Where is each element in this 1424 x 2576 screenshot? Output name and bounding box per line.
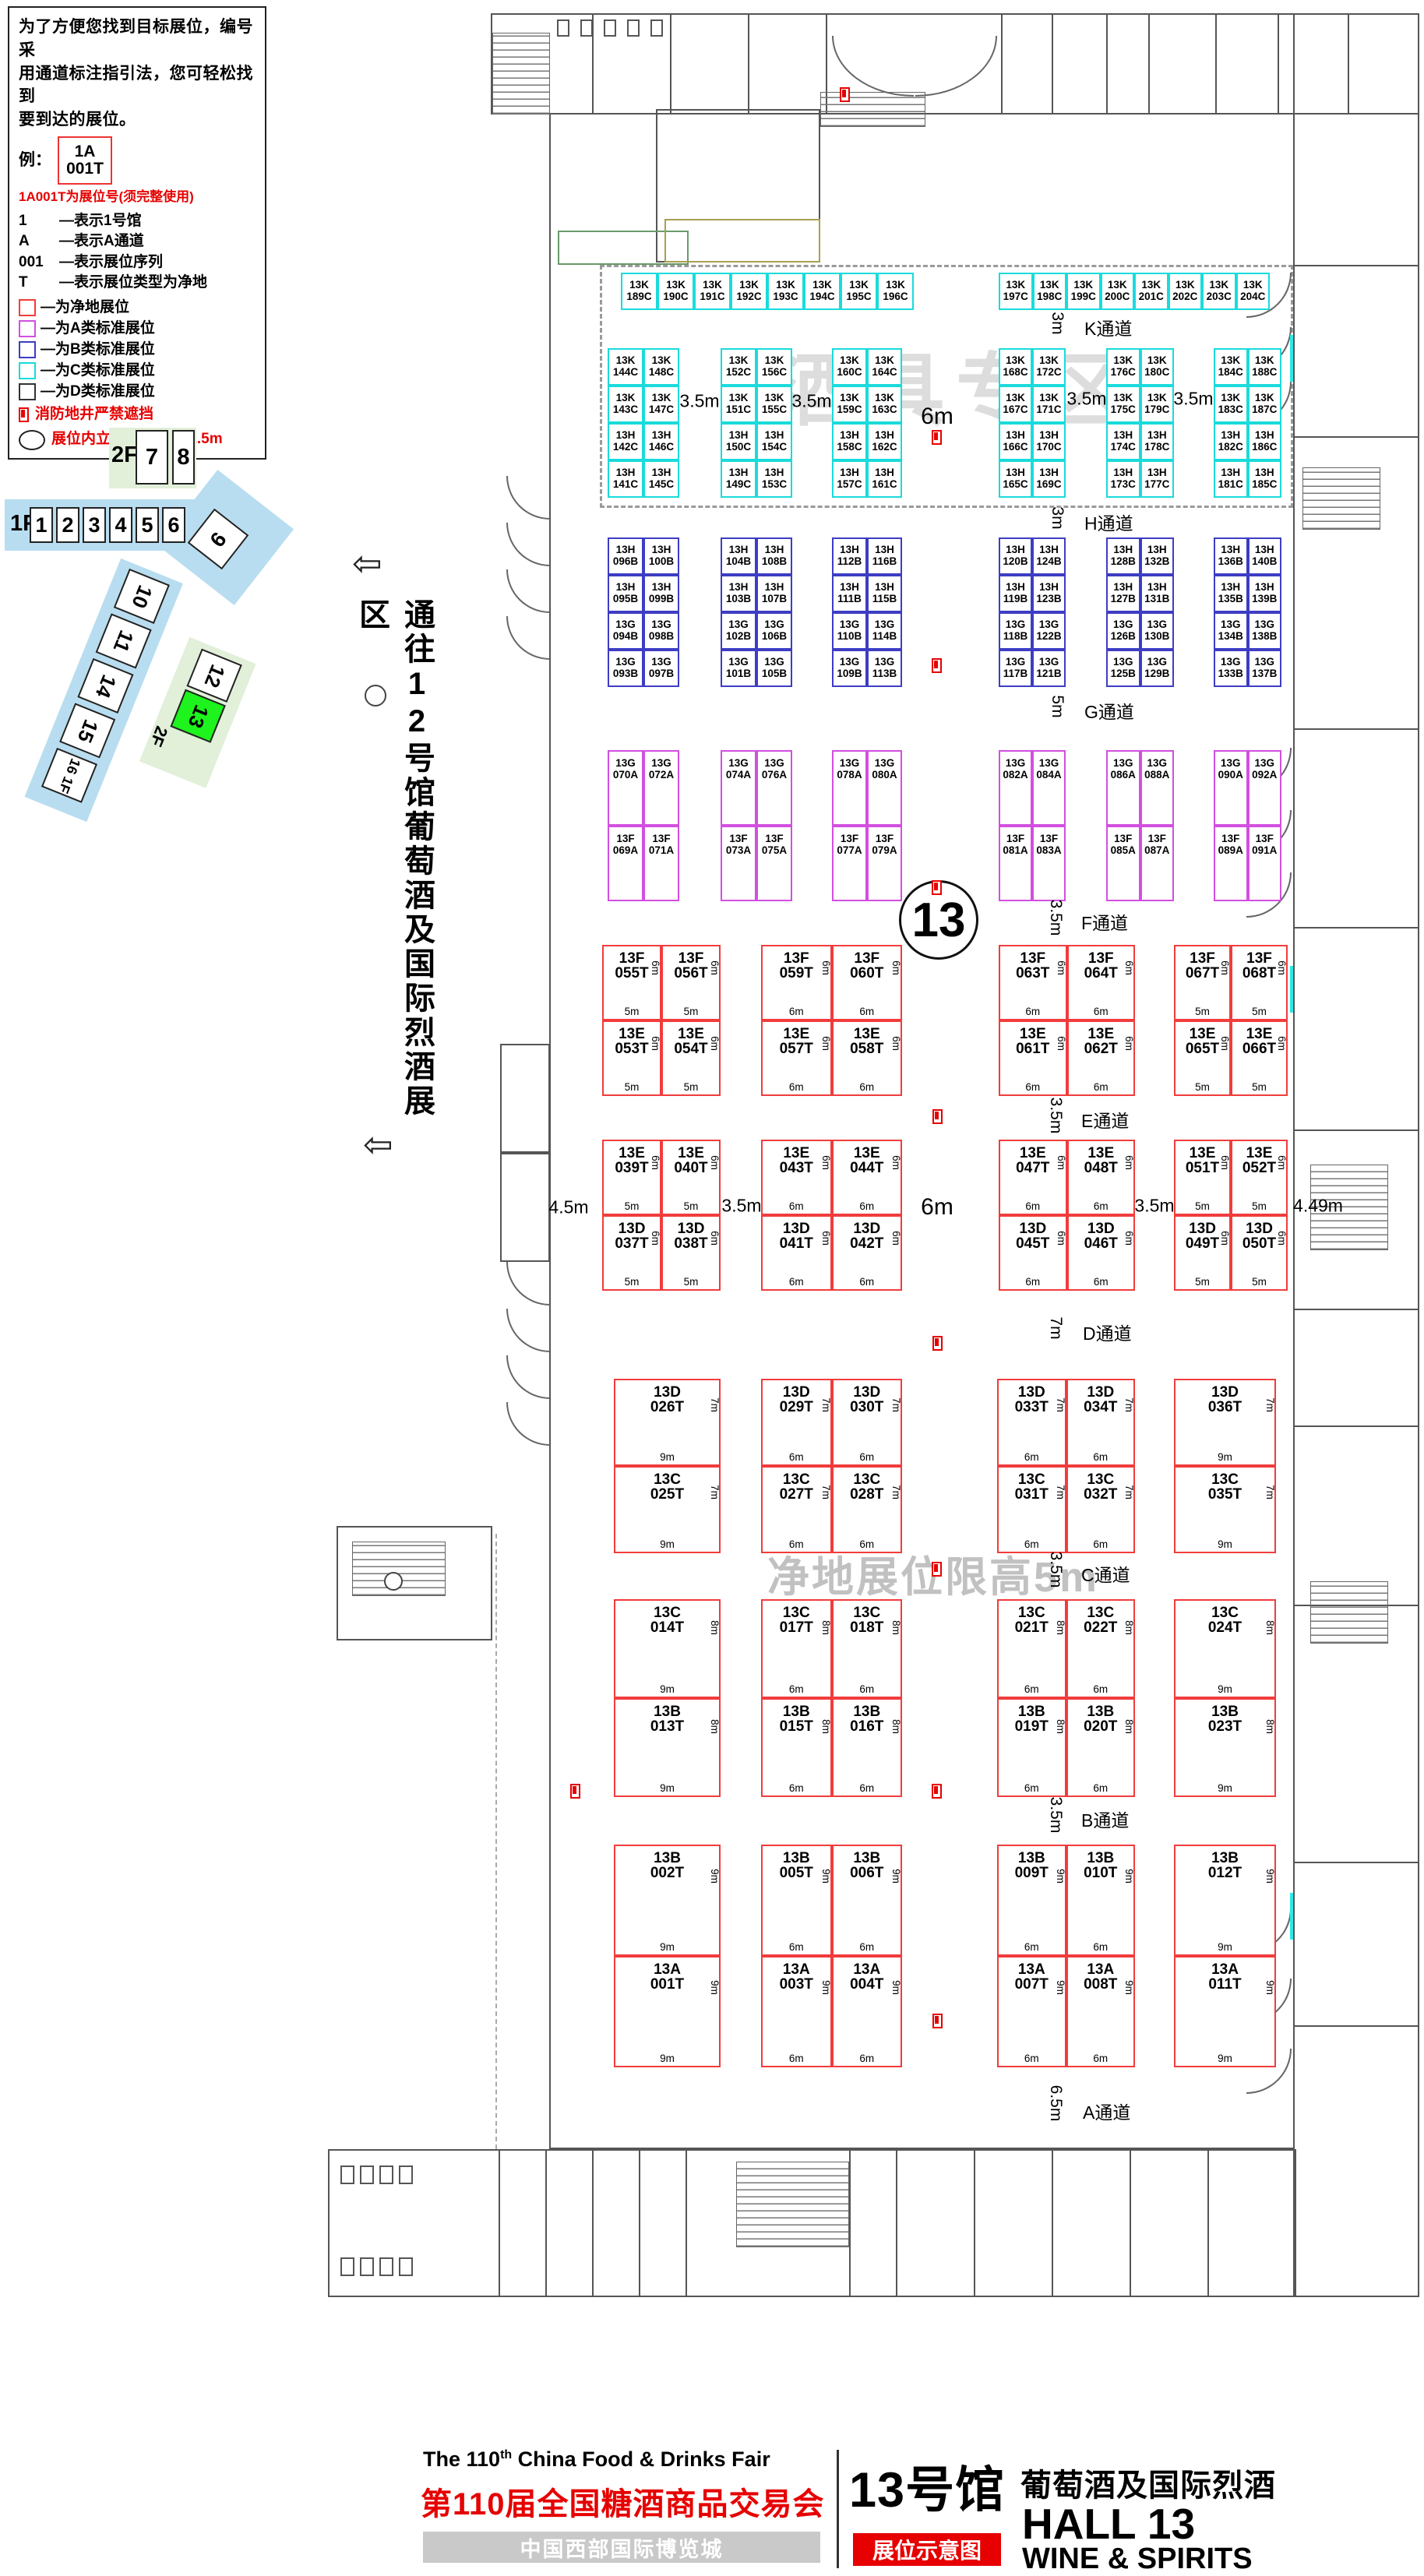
booth-code: 13G088A [1144, 758, 1169, 781]
booth-width-dim: 6m [834, 1276, 901, 1288]
wall-line [549, 115, 551, 2149]
booth-cell: 13G090A [1214, 750, 1248, 826]
dimension-label: 3.5m [679, 391, 719, 412]
booth-width-dim: 9m [615, 1782, 719, 1794]
dimension-label: 4.49m [1293, 1196, 1343, 1217]
booth-depth-dim: 7m [1123, 1397, 1135, 1412]
room-outline [360, 2165, 374, 2184]
booth-depth-dim: 6m [1276, 1156, 1288, 1171]
booth-depth-dim: 6m [890, 1037, 902, 1052]
booth-code: 13H115B [872, 582, 897, 605]
booth-cell: 13G098B [643, 612, 679, 650]
booth-cell: 13G097B [643, 650, 679, 687]
booth-cell: 13H178C [1140, 423, 1175, 460]
booth-cell: 13H165C [999, 460, 1032, 498]
booth-width-dim: 6m [999, 1451, 1065, 1463]
booth-cell: 13K203C [1202, 273, 1236, 310]
booth-code: 13H150C [726, 430, 751, 453]
booth-cell: 13G082A [999, 750, 1032, 826]
booth-code: 13H141C [613, 467, 638, 491]
booth-cell: 13K201C [1134, 273, 1168, 310]
booth-depth-dim: 7m [890, 1397, 902, 1412]
booth-code: 13K159C [837, 393, 862, 416]
boundary-dashed-line [495, 1534, 497, 2149]
booth-cell: 13B013T8m9m [614, 1698, 721, 1797]
booth-cell: 13B015T8m6m [761, 1698, 832, 1797]
booth-code: 13G080A [872, 758, 897, 781]
booth-cell: 13K179C [1140, 386, 1175, 423]
aisle-label: F通道 [1081, 908, 1128, 935]
booth-width-dim: 6m [1069, 1276, 1134, 1288]
booth-code: 13F075A [762, 833, 787, 857]
booth-code: 13K187C [1252, 393, 1277, 416]
booth-code: 13K197C [1003, 280, 1028, 303]
stairs [1302, 467, 1380, 530]
booth-depth-dim: 9m [1055, 1980, 1066, 1995]
booth-depth-dim: 8m [1264, 1719, 1276, 1734]
booth-code: 13F085A [1111, 833, 1136, 857]
booth-cell: 13G080A [867, 750, 902, 826]
booth-depth-dim: 9m [820, 1980, 832, 1995]
booth-width-dim: 5m [1232, 1081, 1286, 1093]
booth-width-dim: 6m [1000, 1006, 1066, 1017]
booth-cell: 13K192C [731, 273, 767, 310]
booth-code: 13C035T [1176, 1472, 1274, 1503]
booth-code: 13G126B [1111, 619, 1136, 643]
booth-cell: 13B002T9m9m [614, 1845, 721, 1956]
booth-cell: 13E052T6m5m [1231, 1140, 1288, 1215]
booth-width-dim: 5m [1232, 1006, 1286, 1017]
dimension-label: 6m [921, 1194, 953, 1221]
booth-code: 13K156C [762, 355, 787, 379]
booth-cell: 13D036T7m9m [1174, 1379, 1276, 1466]
booth-width-dim: 5m [1176, 1200, 1229, 1212]
aisle-width-dim: 3.5m [1046, 1552, 1065, 1588]
booth-code: 13K176C [1111, 355, 1136, 379]
booth-width-dim: 6m [763, 1683, 830, 1695]
booth-cell: 13G093B [608, 650, 643, 687]
wall-line [1293, 1129, 1419, 1131]
plan-tag-badge: 展位示意图 [853, 2533, 1001, 2566]
fire-well-icon [932, 430, 942, 445]
wall-line [499, 2149, 500, 2297]
booth-depth-dim: 6m [1056, 1232, 1067, 1246]
booth-code: 13G114B [872, 619, 897, 643]
aisle-label: E通道 [1081, 1106, 1129, 1133]
booth-cell: 13F060T6m6m [832, 945, 903, 1020]
booth-cell: 13K143C [608, 386, 643, 423]
wall-line [748, 13, 749, 115]
room-outline [650, 19, 663, 37]
booth-width-dim: 9m [1176, 2053, 1274, 2064]
aisle-width-dim: 3m [1048, 312, 1066, 334]
booth-cell: 13G130B [1140, 612, 1175, 650]
wall-line [686, 2149, 687, 2297]
booth-cell: 13B019T8m6m [997, 1698, 1066, 1797]
booth-depth-dim: 9m [1123, 1869, 1135, 1884]
booth-code: 13H131B [1144, 582, 1169, 605]
booth-cell: 13H096B [608, 537, 643, 575]
booth-cell: 13E051T6m5m [1174, 1140, 1231, 1215]
booth-code: 13K204C [1240, 280, 1265, 303]
booth-depth-dim: 6m [1123, 1156, 1135, 1171]
booth-cell: 13K187C [1248, 386, 1282, 423]
booth-depth-dim: 7m [709, 1397, 721, 1412]
hall-category-en: WINE & SPIRITS [1022, 2543, 1253, 2576]
booth-cell: 13D037T6m5m [602, 1215, 661, 1291]
wall-line [1148, 13, 1150, 115]
fire-well-icon [932, 880, 942, 895]
booth-cell: 13F069A [608, 826, 643, 901]
booth-cell: 13H139B [1248, 575, 1282, 612]
booth-cell: 13G078A [832, 750, 867, 826]
room-outline [664, 219, 820, 263]
booth-cell: 13H116B [867, 537, 902, 575]
booth-cell: 13H174C [1106, 423, 1140, 460]
booth-cell: 13A011T9m9m [1174, 1956, 1276, 2067]
booth-code: 13H116B [872, 544, 897, 568]
booth-depth-dim: 6m [650, 1156, 661, 1171]
booth-code: 13K201C [1139, 280, 1164, 303]
booth-cell: 13E054T6m5m [661, 1020, 721, 1096]
fire-well-icon [932, 1109, 943, 1124]
booth-cell: 13H161C [867, 460, 902, 498]
booth-cell: 13F081A [999, 826, 1032, 901]
booth-cell: 13H157C [832, 460, 867, 498]
booth-width-dim: 6m [1069, 1200, 1134, 1212]
booth-code: 13K184C [1218, 355, 1243, 379]
booth-cell: 13E061T6m6m [999, 1020, 1067, 1096]
booth-code: 13H112B [837, 544, 862, 568]
wall-tick [1290, 335, 1293, 382]
booth-cell: 13K200C [1101, 273, 1135, 310]
booth-cell: 13K180C [1140, 348, 1175, 386]
booth-depth-dim: 6m [709, 1156, 721, 1171]
room-outline [500, 1044, 550, 1153]
booth-depth-dim: 9m [820, 1869, 832, 1884]
booth-cell: 13G117B [999, 650, 1032, 687]
booth-depth-dim: 6m [650, 1037, 661, 1052]
booth-depth-dim: 9m [1123, 1980, 1135, 1995]
room-outline [557, 19, 569, 37]
booth-cell: 13G094B [608, 612, 643, 650]
booth-cell: 13K196C [877, 273, 914, 310]
fair-title-en: The 110th China Food & Drinks Fair [423, 2447, 770, 2472]
wall-line [1001, 13, 1003, 115]
booth-width-dim: 6m [834, 1451, 901, 1463]
booth-cell: 13D045T6m6m [999, 1215, 1067, 1291]
booth-width-dim: 6m [1068, 1782, 1134, 1794]
booth-cell: 13H166C [999, 423, 1032, 460]
aisle-label: K通道 [1084, 314, 1132, 340]
booth-cell: 13A003T9m6m [761, 1956, 832, 2067]
fire-well-icon [932, 1562, 942, 1577]
booth-cell: 13G121B [1032, 650, 1066, 687]
booth-width-dim: 6m [1069, 1006, 1134, 1017]
booth-code: 13K160C [837, 355, 862, 379]
booth-code: 13B012T [1176, 1851, 1274, 1881]
booth-width-dim: 6m [763, 2053, 830, 2064]
booth-cell: 13G106B [756, 612, 792, 650]
booth-cell: 13F068T6m5m [1231, 945, 1288, 1020]
booth-cell: 13H181C [1214, 460, 1248, 498]
booth-code: 13K199C [1071, 280, 1096, 303]
booth-code: 13F089A [1218, 833, 1243, 857]
booth-cell: 13F077A [832, 826, 867, 901]
booth-width-dim: 6m [834, 1782, 901, 1794]
booth-code: 13H136B [1218, 544, 1243, 568]
booth-cell: 13K163C [867, 386, 902, 423]
booth-depth-dim: 6m [890, 961, 902, 976]
wall-line [1052, 13, 1053, 115]
booth-code: 13K191C [700, 280, 724, 303]
wall-line [1348, 13, 1349, 115]
booth-cell: 13A004T9m6m [832, 1956, 903, 2067]
booth-cell: 13K152C [721, 348, 756, 386]
booth-code: 13D026T [615, 1385, 719, 1415]
booth-width-dim: 5m [663, 1276, 719, 1288]
booth-code: 13G130B [1144, 619, 1169, 643]
booth-depth-dim: 8m [1055, 1719, 1066, 1734]
booth-cell: 13K147C [643, 386, 679, 423]
booth-depth-dim: 6m [890, 1156, 902, 1171]
fire-well-icon [932, 2014, 943, 2028]
booth-code: 13G102B [726, 619, 751, 643]
booth-code: 13H185C [1252, 467, 1277, 491]
booth-cell: 13H108B [756, 537, 792, 575]
booth-code: 13H124B [1036, 544, 1061, 568]
aisle-width-dim: 3.5m [1046, 1098, 1065, 1134]
fire-well-icon [570, 1784, 580, 1799]
booth-cell: 13C018T8m6m [832, 1599, 903, 1698]
booth-cell: 13H131B [1140, 575, 1175, 612]
booth-depth-dim: 8m [1123, 1719, 1135, 1734]
booth-code: 13K192C [736, 280, 761, 303]
dimension-label: 3.5m [1173, 389, 1213, 410]
booth-cell: 13C031T7m6m [997, 1466, 1066, 1553]
booth-code: 13G105B [762, 657, 787, 680]
booth-cell: 13D038T6m5m [661, 1215, 721, 1291]
booth-code: 13G121B [1036, 657, 1061, 680]
booth-cell: 13D041T6m6m [761, 1215, 832, 1291]
booth-code: 13K144C [613, 355, 638, 379]
booth-cell: 13F071A [643, 826, 679, 901]
booth-width-dim: 9m [1176, 1941, 1274, 1953]
booth-code: 13K168C [1003, 355, 1027, 379]
booth-width-dim: 6m [1069, 1081, 1134, 1093]
booth-cell: 13B012T9m9m [1174, 1845, 1276, 1956]
booth-depth-dim: 6m [709, 961, 721, 976]
footer-divider [837, 2450, 839, 2568]
booth-cell: 13E062T6m6m [1067, 1020, 1136, 1096]
booth-code: 13F091A [1252, 833, 1277, 857]
booth-code: 13H169C [1036, 467, 1061, 491]
booth-cell: 13K188C [1248, 348, 1282, 386]
wall-line [1106, 13, 1108, 115]
wall-tick [1290, 966, 1293, 1013]
booth-code: 13H173C [1111, 467, 1136, 491]
booth-width-dim: 9m [615, 1451, 719, 1463]
booth-cell: 13K184C [1214, 348, 1248, 386]
booth-width-dim: 5m [1176, 1081, 1229, 1093]
booth-code: 13G138B [1252, 619, 1277, 643]
booth-code: 13H119B [1003, 582, 1028, 605]
booth-code: 13K152C [726, 355, 751, 379]
booth-cell: 13E065T6m5m [1174, 1020, 1231, 1096]
booth-cell: 13G126B [1106, 612, 1140, 650]
booth-code: 13H128B [1111, 544, 1136, 568]
booth-cell: 13K191C [694, 273, 731, 310]
booth-cell: 13K176C [1106, 348, 1140, 386]
booth-cell: 13K168C [999, 348, 1032, 386]
booth-depth-dim: 7m [1123, 1485, 1135, 1499]
booth-cell: 13H162C [867, 423, 902, 460]
booth-depth-dim: 9m [1264, 1980, 1276, 1995]
booth-cell: 13K189C [621, 273, 657, 310]
booth-cell: 13B016T8m6m [832, 1698, 903, 1797]
floorplan-page: 为了方便您找到目标展位，编号采 用通道标注指引法，您可轻松找到 要到达的展位。 … [0, 0, 1424, 2576]
booth-width-dim: 5m [604, 1081, 660, 1093]
wall-line [592, 2149, 594, 2297]
wall-line [1278, 13, 1279, 115]
booth-width-dim: 5m [1232, 1276, 1286, 1288]
booth-depth-dim: 6m [1276, 1232, 1288, 1246]
wall-line [670, 13, 671, 115]
booth-cell: 13C022T8m6m [1066, 1599, 1136, 1698]
booth-depth-dim: 6m [1276, 961, 1288, 976]
booth-cell: 13D026T7m9m [614, 1379, 721, 1466]
room-outline [604, 19, 616, 37]
booth-depth-dim: 9m [709, 1980, 721, 1995]
aisle-width-dim: 6.5m [1046, 2085, 1065, 2122]
booth-code: 13G118B [1003, 619, 1028, 643]
booth-width-dim: 6m [763, 1941, 830, 1953]
booth-cell: 13K172C [1032, 348, 1066, 386]
booth-cell: 13F064T6m6m [1067, 945, 1136, 1020]
wall-line [974, 2149, 975, 2297]
aisle-width-dim: 7m [1046, 1316, 1065, 1339]
booth-code: 13H165C [1003, 467, 1027, 491]
booth-code: 13C024T [1176, 1605, 1274, 1636]
aisle-label: A通道 [1083, 2098, 1130, 2124]
booth-width-dim: 6m [834, 1683, 901, 1695]
booth-cell: 13H150C [721, 423, 756, 460]
booth-cell: 13D034T7m6m [1066, 1379, 1136, 1466]
booth-cell: 13H100B [643, 537, 679, 575]
booth-depth-dim: 6m [709, 1037, 721, 1052]
booth-cell: 13H099B [643, 575, 679, 612]
booth-code: 13H181C [1218, 467, 1243, 491]
wall-line [1293, 1309, 1419, 1310]
booth-cell: 13H149C [721, 460, 756, 498]
room-outline [1293, 13, 1419, 2297]
booth-cell: 13G138B [1248, 612, 1282, 650]
booth-depth-dim: 7m [1055, 1397, 1066, 1412]
booth-code: 13K198C [1037, 280, 1062, 303]
booth-code: 13H108B [762, 544, 787, 568]
booth-depth-dim: 6m [820, 1232, 832, 1246]
booth-depth-dim: 9m [709, 1869, 721, 1884]
booth-cell: 13K183C [1214, 386, 1248, 423]
booth-cell: 13K197C [999, 273, 1033, 310]
booth-cell: 13K193C [767, 273, 804, 310]
booth-width-dim: 5m [663, 1200, 719, 1212]
booth-cell: 13E057T6m6m [761, 1020, 832, 1096]
stairs [492, 33, 550, 115]
booth-code: 13H142C [613, 430, 638, 453]
dimension-label: 6m [921, 403, 953, 430]
booth-cell: 13H182C [1214, 423, 1248, 460]
booth-code: 13H099B [649, 582, 674, 605]
booth-code: 13G098B [649, 619, 674, 643]
booth-cell: 13H104B [721, 537, 756, 575]
booth-depth-dim: 6m [1276, 1037, 1288, 1052]
booth-depth-dim: 7m [1264, 1485, 1276, 1499]
hall-title-cn: 13号馆 [849, 2451, 1005, 2521]
booth-code: 13H127B [1111, 582, 1136, 605]
booth-width-dim: 6m [763, 1006, 830, 1017]
fire-well-icon [932, 1336, 943, 1351]
booth-code: 13G129B [1144, 657, 1169, 680]
booth-code: 13F079A [872, 833, 897, 857]
booth-code: 13H149C [726, 467, 751, 491]
booth-cell: 13F085A [1106, 826, 1140, 901]
booth-cell: 13E039T6m5m [602, 1140, 661, 1215]
booth-cell: 13K160C [832, 348, 867, 386]
booth-code: 13H096B [613, 544, 638, 568]
booth-depth-dim: 7m [890, 1485, 902, 1499]
booth-code: 13K167C [1003, 393, 1027, 416]
booth-cell: 13D033T7m6m [997, 1379, 1066, 1466]
booth-width-dim: 9m [615, 2053, 719, 2064]
booth-code: 13K151C [726, 393, 751, 416]
booth-cell: 13H123B [1032, 575, 1066, 612]
wall-line [545, 2149, 547, 2297]
booth-code: 13H146C [649, 430, 674, 453]
booth-width-dim: 9m [1176, 1683, 1274, 1695]
door-arc-icon [506, 1309, 550, 1352]
booth-depth-dim: 9m [1264, 1869, 1276, 1884]
booth-depth-dim: 7m [820, 1485, 832, 1499]
booth-depth-dim: 6m [1123, 961, 1135, 976]
booth-depth-dim: 6m [709, 1232, 721, 1246]
booth-cell: 13H135B [1214, 575, 1248, 612]
booth-width-dim: 9m [1176, 1451, 1274, 1463]
booth-code: 13G125B [1111, 657, 1136, 680]
booth-depth-dim: 9m [1055, 1869, 1066, 1884]
booth-code: 13F077A [837, 833, 862, 857]
booth-code: 13H166C [1003, 430, 1027, 453]
wall-line [1130, 2149, 1131, 2297]
booth-cell: 13B020T8m6m [1066, 1698, 1136, 1797]
wall-line [639, 2149, 640, 2297]
booth-depth-dim: 6m [820, 1156, 832, 1171]
booth-code: 13F081A [1003, 833, 1027, 857]
booth-width-dim: 5m [663, 1081, 719, 1093]
booth-code: 13F083A [1036, 833, 1061, 857]
booth-width-dim: 6m [999, 1782, 1065, 1794]
booth-cell: 13H127B [1106, 575, 1140, 612]
booth-depth-dim: 8m [709, 1620, 721, 1635]
booth-cell: 13G070A [608, 750, 643, 826]
booth-code: 13A001T [615, 1962, 719, 1993]
booth-code: 13K188C [1252, 355, 1277, 379]
booth-cell: 13K175C [1106, 386, 1140, 423]
booth-width-dim: 9m [1176, 1538, 1274, 1550]
booth-depth-dim: 6m [1123, 1037, 1135, 1052]
booth-cell: 13B006T9m6m [832, 1845, 903, 1956]
booth-code: 13F073A [726, 833, 751, 857]
